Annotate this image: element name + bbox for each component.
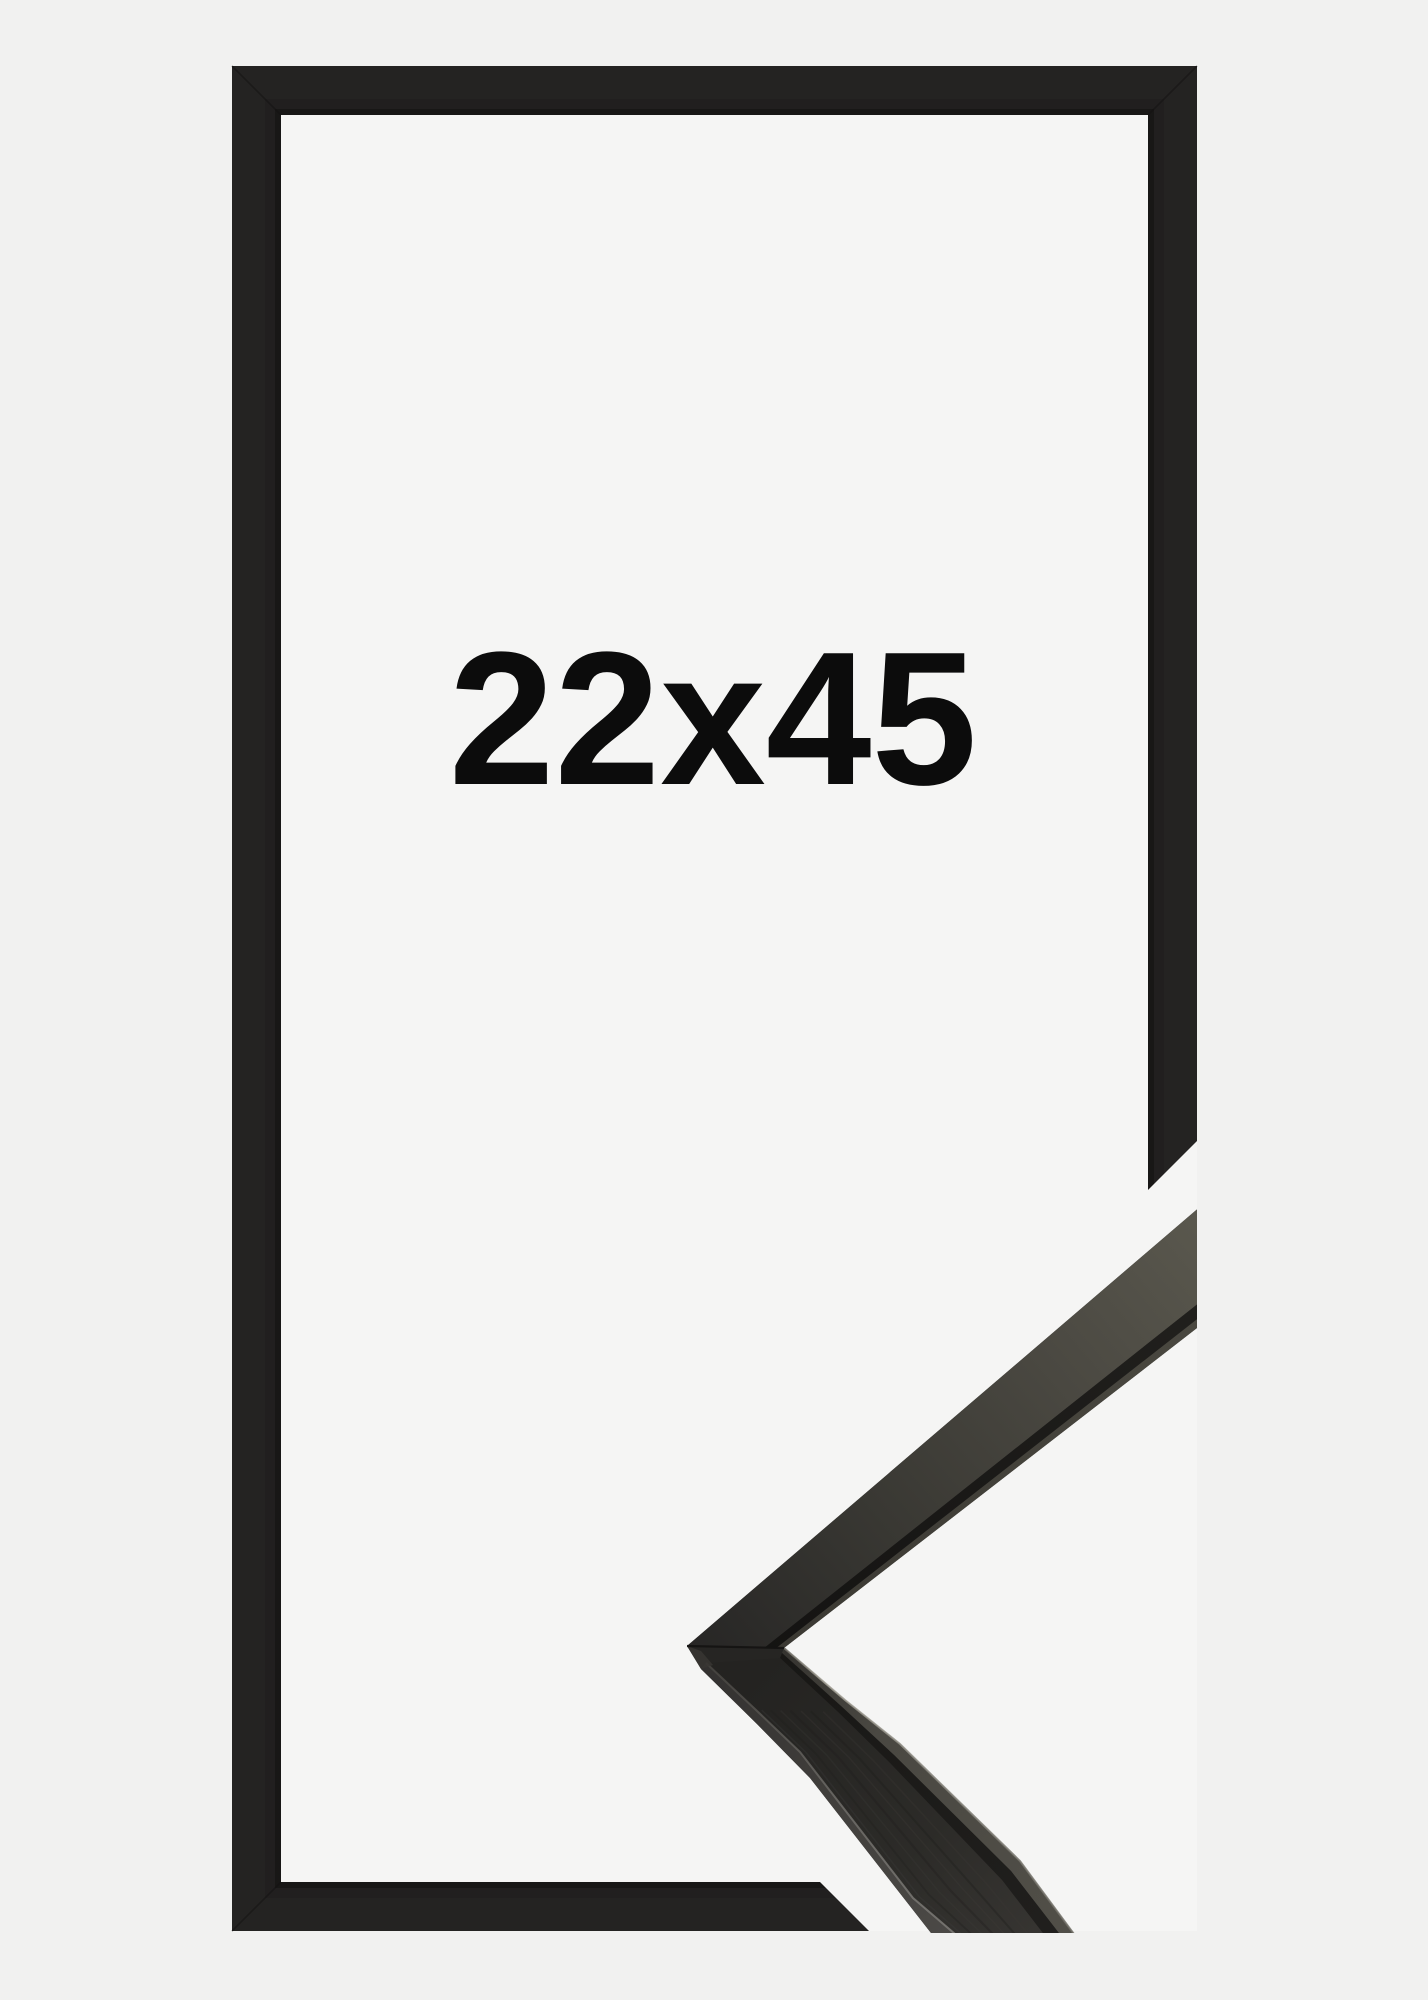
svg-text:22x45: 22x45 [449,613,977,825]
